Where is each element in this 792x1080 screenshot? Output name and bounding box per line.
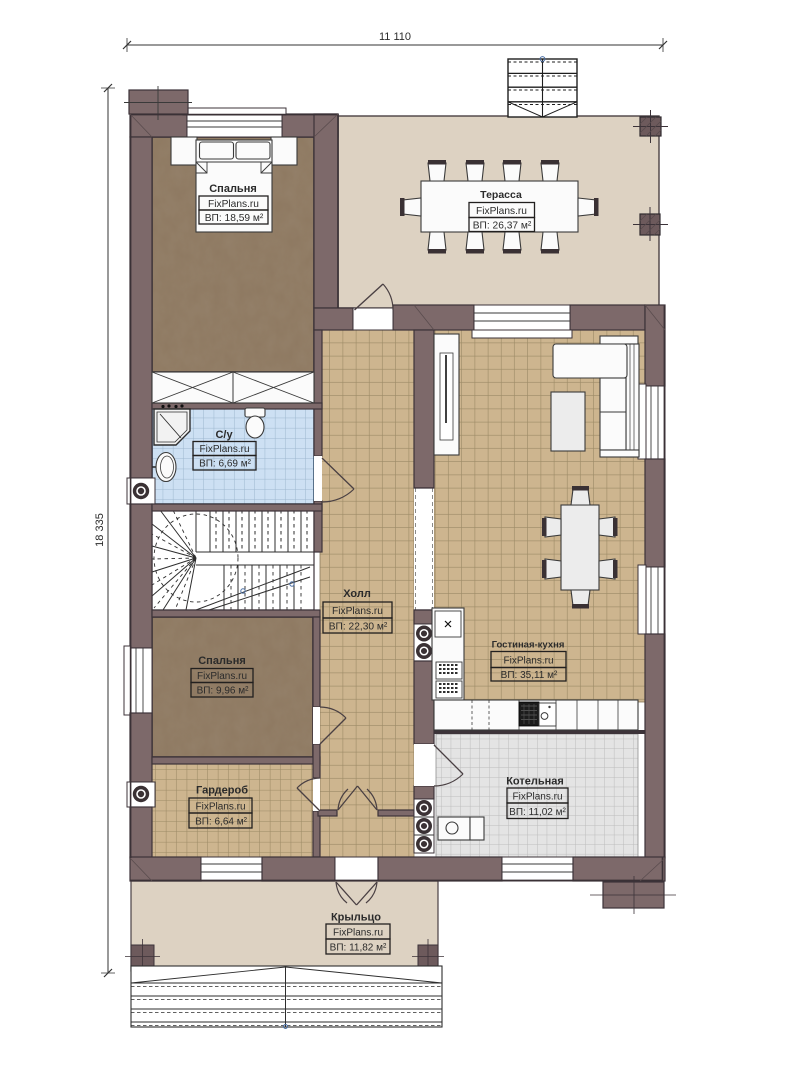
svg-text:ВП: 35,11 м²: ВП: 35,11 м² [501,670,558,681]
svg-text:11 110: 11 110 [379,31,411,43]
svg-text:ВП: 6,69 м²: ВП: 6,69 м² [199,459,252,470]
svg-text:Крыльцо: Крыльцо [331,912,381,924]
svg-text:ВП: 9,96 м²: ВП: 9,96 м² [197,686,250,697]
svg-text:ВП: 11,02 м²: ВП: 11,02 м² [509,807,566,818]
svg-text:FixPlans.ru: FixPlans.ru [208,199,259,210]
svg-text:Котельная: Котельная [506,776,564,788]
svg-text:Терасса: Терасса [480,189,522,201]
svg-text:FixPlans.ru: FixPlans.ru [512,792,562,803]
svg-text:Гостиная-кухня: Гостиная-кухня [492,640,565,651]
svg-text:FixPlans.ru: FixPlans.ru [503,656,553,667]
svg-text:С/у: С/у [215,429,233,441]
svg-text:ВП: 22,30 м²: ВП: 22,30 м² [329,622,388,633]
svg-text:FixPlans.ru: FixPlans.ru [333,928,383,939]
svg-text:FixPlans.ru: FixPlans.ru [332,606,383,617]
svg-text:ВП: 11,82 м²: ВП: 11,82 м² [330,943,387,954]
svg-text:FixPlans.ru: FixPlans.ru [199,444,249,455]
svg-text:Спальня: Спальня [198,655,246,667]
svg-text:FixPlans.ru: FixPlans.ru [197,671,247,682]
svg-text:FixPlans.ru: FixPlans.ru [476,206,527,217]
svg-text:ВП: 18,59 м²: ВП: 18,59 м² [205,213,264,224]
svg-text:Гардероб: Гардероб [196,785,248,797]
svg-text:ВП: 26,37 м²: ВП: 26,37 м² [473,221,532,232]
svg-text:18 335: 18 335 [94,513,106,547]
svg-text:Спальня: Спальня [209,183,257,195]
svg-text:ВП: 6,64 м²: ВП: 6,64 м² [195,817,248,828]
svg-text:Холл: Холл [343,588,371,600]
svg-text:FixPlans.ru: FixPlans.ru [195,802,245,813]
